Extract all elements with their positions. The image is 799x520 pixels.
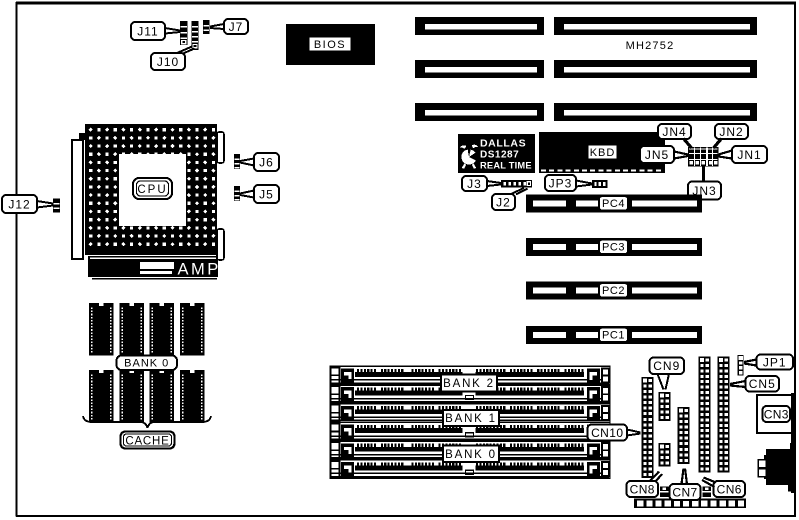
svg-text:J7: J7 [229,20,244,34]
svg-text:BIOS: BIOS [314,39,346,51]
svg-text:DALLAS: DALLAS [480,138,526,150]
svg-text:J11: J11 [137,24,158,38]
svg-text:CACHE: CACHE [125,435,169,447]
svg-text:BANK 2: BANK 2 [443,378,495,390]
svg-text:JN1: JN1 [737,148,761,162]
svg-text:CN9: CN9 [653,359,680,373]
svg-text:PC3: PC3 [602,241,625,253]
svg-text:CN7: CN7 [672,485,697,499]
svg-text:J12: J12 [8,197,30,211]
svg-text:REAL TIME: REAL TIME [480,161,532,171]
svg-text:JP1: JP1 [763,355,787,369]
svg-text:CN8: CN8 [630,482,655,496]
svg-text:J10: J10 [157,55,179,69]
svg-text:JN2: JN2 [719,125,743,139]
svg-text:J2: J2 [496,195,511,209]
svg-text:CN6: CN6 [717,482,742,496]
svg-text:J5: J5 [259,187,274,201]
svg-text:JN5: JN5 [645,148,669,162]
svg-text:JP3: JP3 [549,176,573,190]
svg-text:DS1287: DS1287 [480,150,519,161]
svg-text:J3: J3 [467,177,482,191]
svg-text:CPU: CPU [137,184,167,196]
svg-text:AMP: AMP [178,261,221,279]
svg-text:MH2752: MH2752 [626,40,675,52]
svg-text:BANK 1: BANK 1 [445,413,497,425]
svg-text:PC4: PC4 [602,198,625,210]
svg-text:CN5: CN5 [749,377,776,391]
svg-text:PC1: PC1 [602,329,625,341]
svg-text:BANK 0: BANK 0 [445,449,497,461]
svg-text:PC2: PC2 [602,285,625,297]
svg-text:CN3: CN3 [764,407,789,421]
svg-text:KBD: KBD [590,147,616,159]
svg-text:BANK 0: BANK 0 [124,358,169,370]
svg-text:J6: J6 [259,155,274,169]
svg-text:JN4: JN4 [662,125,686,139]
svg-text:CN10: CN10 [591,426,623,440]
